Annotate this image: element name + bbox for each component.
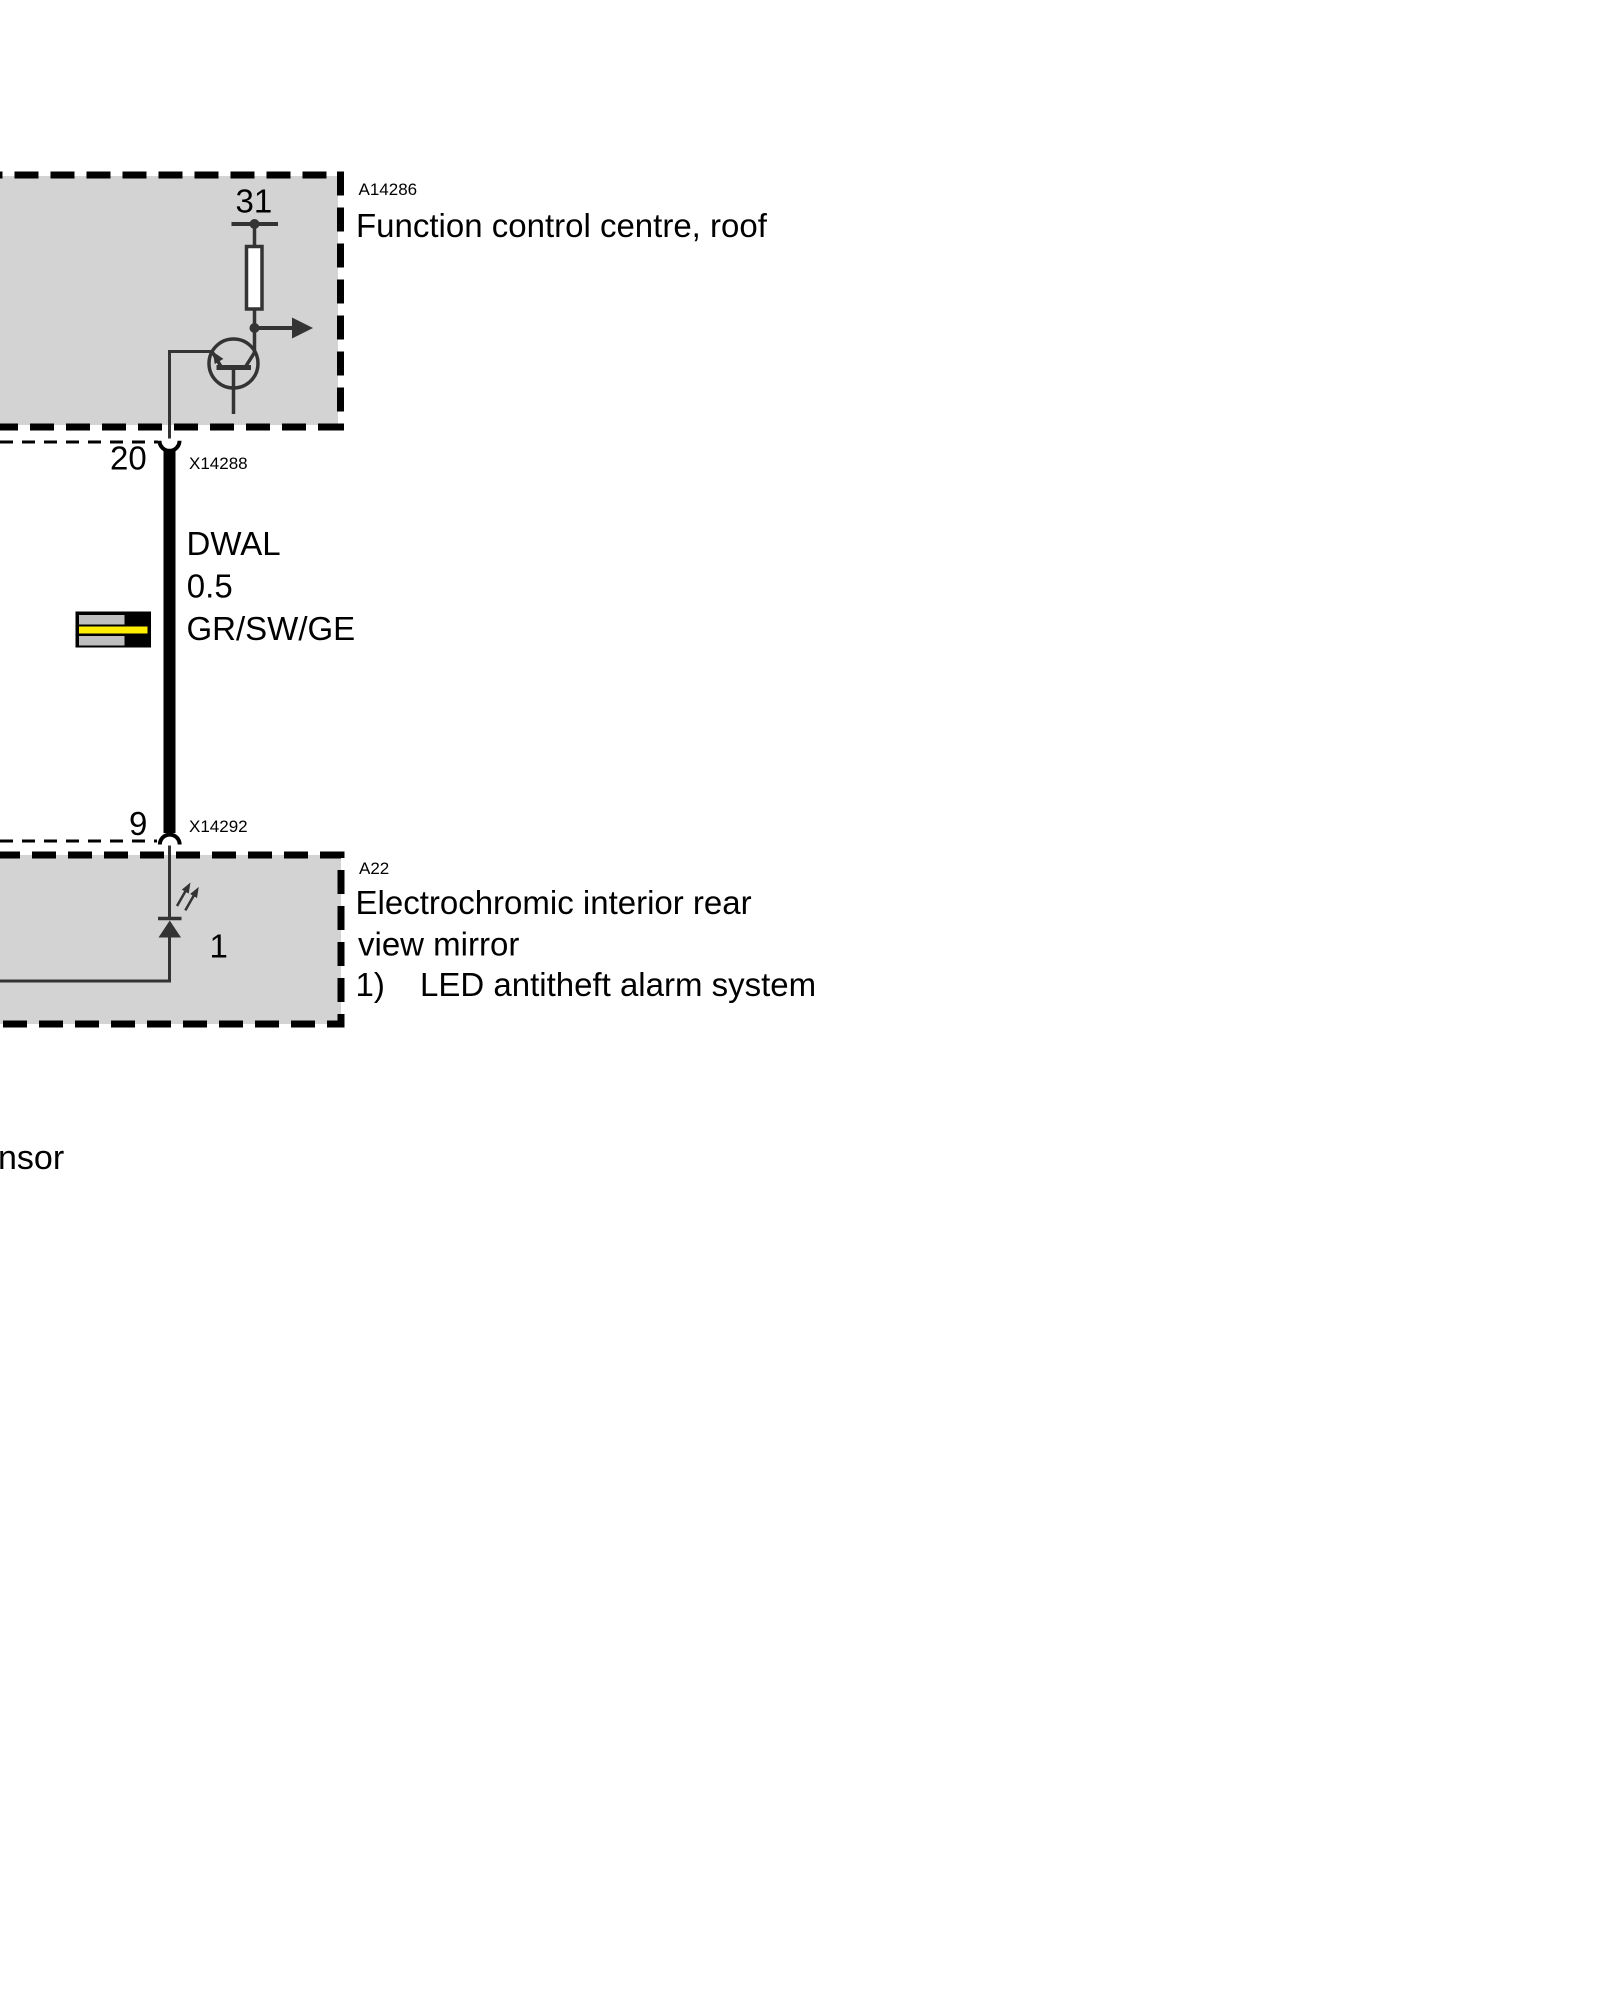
svg-text:GR/SW/GE: GR/SW/GE: [187, 610, 356, 647]
svg-text:31: 31: [236, 183, 273, 220]
svg-text:A14286: A14286: [359, 180, 418, 199]
svg-text:LED antitheft alarm system: LED antitheft alarm system: [420, 966, 816, 1003]
svg-text:nsor: nsor: [0, 1139, 64, 1177]
svg-text:Function control centre, roof: Function control centre, roof: [356, 207, 768, 244]
svg-text:9: 9: [129, 805, 147, 842]
svg-text:0.5: 0.5: [187, 568, 233, 605]
svg-text:DWAL: DWAL: [187, 525, 281, 562]
svg-text:1: 1: [210, 928, 228, 965]
svg-text:X14292: X14292: [189, 817, 248, 836]
svg-text:view mirror: view mirror: [358, 926, 519, 963]
svg-text:20: 20: [110, 440, 147, 477]
svg-text:X14288: X14288: [189, 454, 248, 473]
svg-text:A22: A22: [359, 859, 389, 878]
svg-text:1): 1): [356, 966, 385, 1003]
svg-text:Electrochromic interior rear: Electrochromic interior rear: [356, 884, 752, 921]
